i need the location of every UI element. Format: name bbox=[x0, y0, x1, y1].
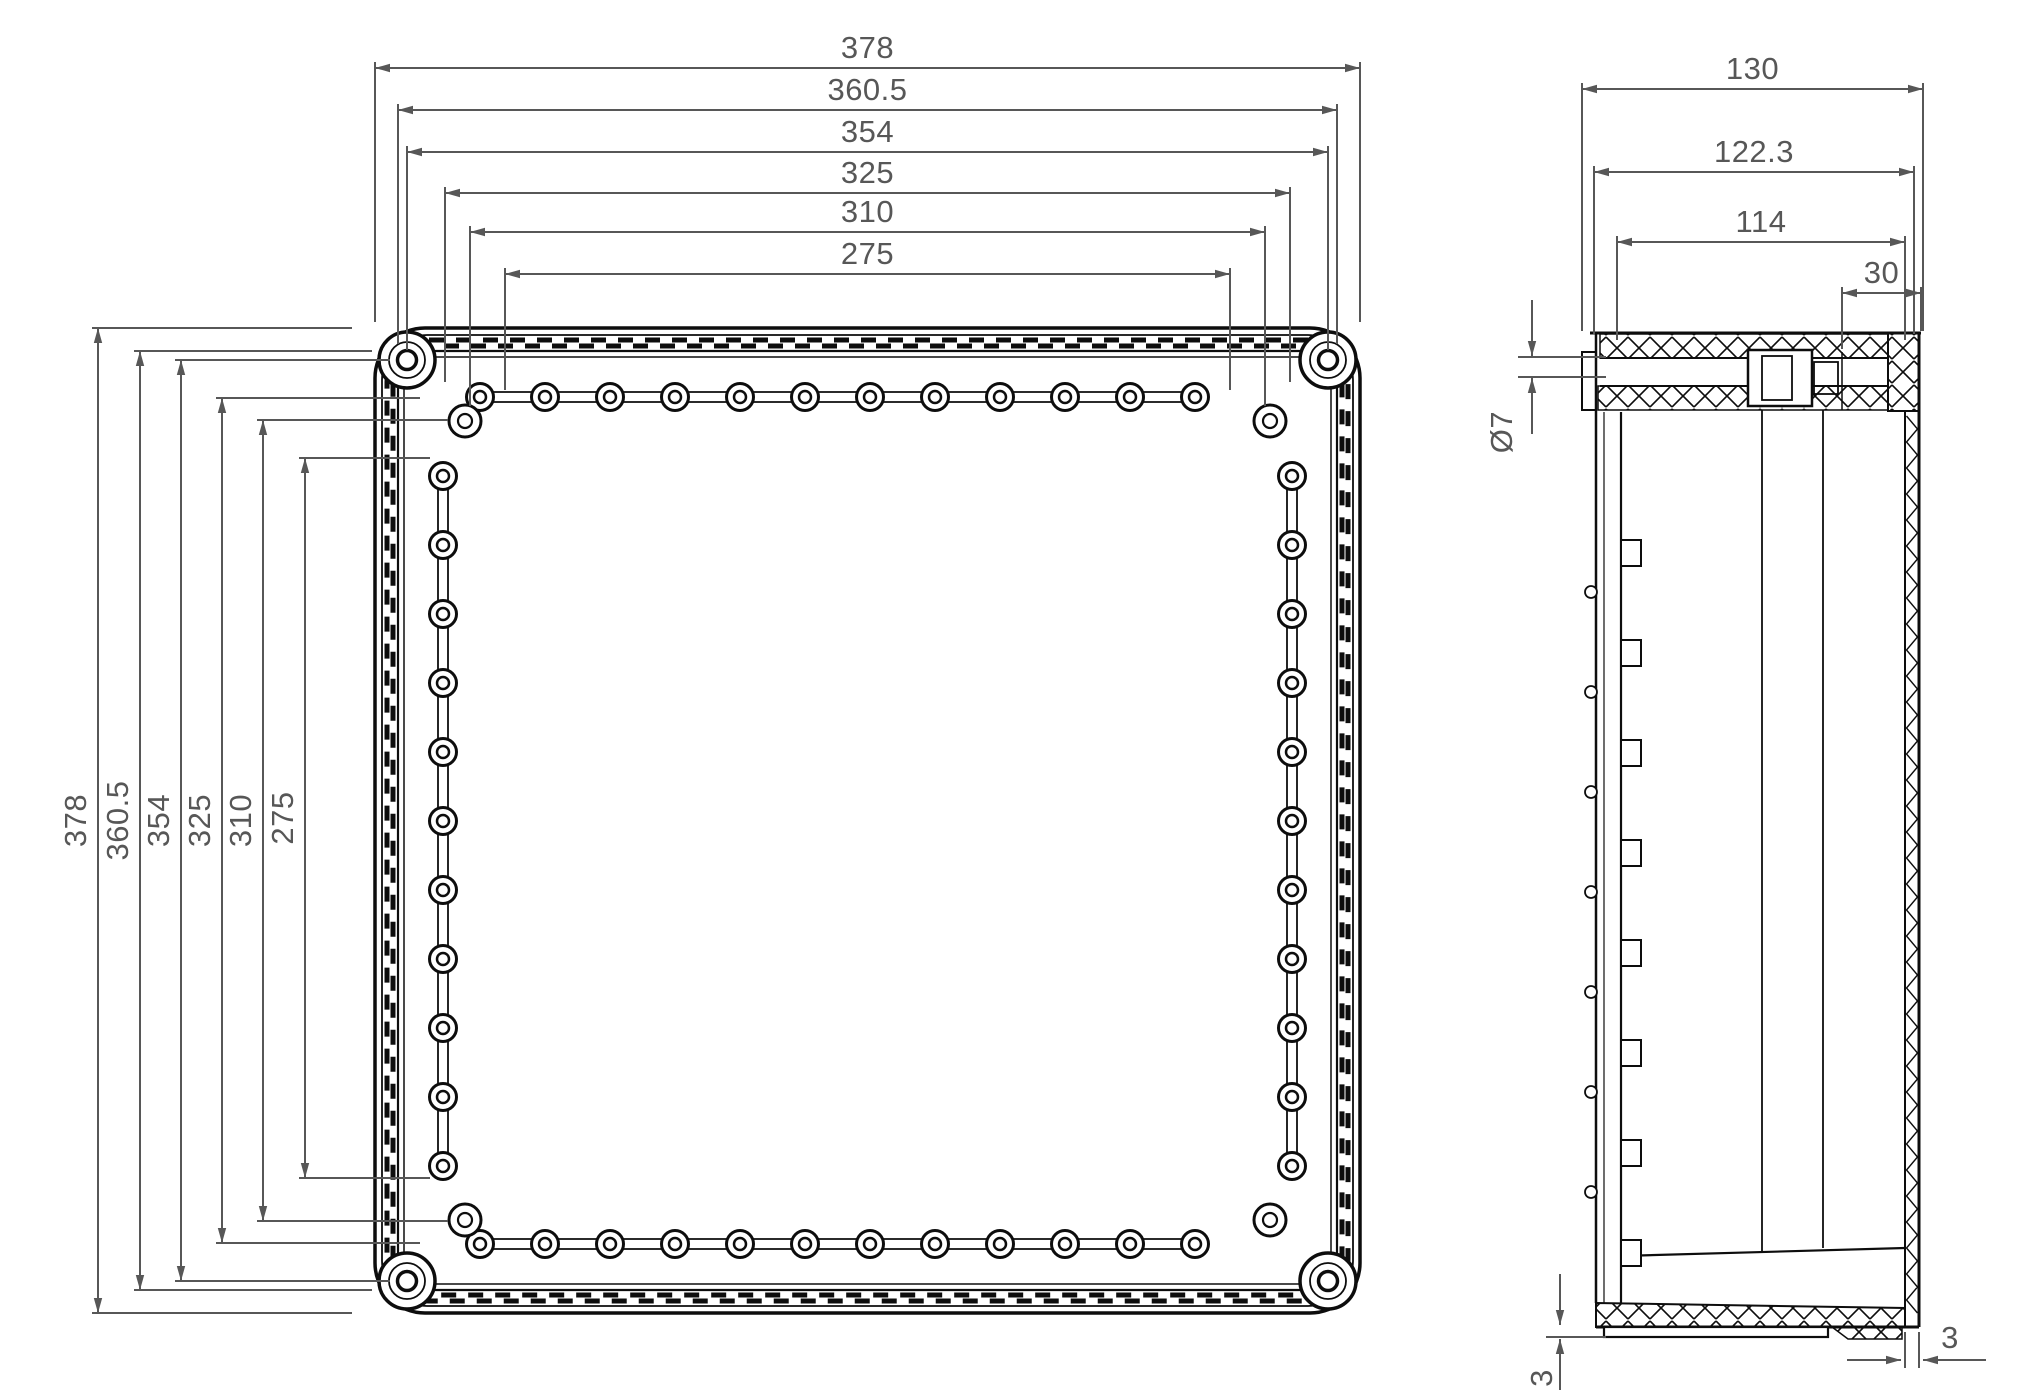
vent-hole bbox=[430, 808, 457, 835]
vent-hole bbox=[430, 946, 457, 973]
flange-tooth bbox=[1621, 1040, 1641, 1066]
vent-hole bbox=[430, 739, 457, 766]
enclosure-wall-line bbox=[382, 335, 1353, 1306]
flange-tooth bbox=[1621, 540, 1641, 566]
cover-screw-section bbox=[1748, 350, 1812, 406]
bottom-foot bbox=[1604, 1327, 1828, 1337]
vent-hole bbox=[1279, 532, 1306, 559]
vent-hole bbox=[792, 1231, 819, 1258]
bottom-wedge-hatch bbox=[1832, 1327, 1902, 1339]
hinge-bump bbox=[1585, 986, 1597, 998]
hinge-bump bbox=[1585, 586, 1597, 598]
enclosure-outer-contour bbox=[375, 328, 1360, 1313]
vent-hole bbox=[987, 384, 1014, 411]
flange-teeth bbox=[1585, 540, 1641, 1266]
dimension-label: 275 bbox=[841, 236, 894, 271]
flange-tooth bbox=[1621, 1140, 1641, 1166]
vent-hole bbox=[430, 463, 457, 490]
dimensions: Ø7 3 3 378360.5354325310275130122.311430… bbox=[58, 30, 1986, 1390]
vent-hole bbox=[1182, 1231, 1209, 1258]
dimension-label: 310 bbox=[223, 794, 258, 847]
vent-hole bbox=[597, 384, 624, 411]
vent-hole bbox=[597, 1231, 624, 1258]
vent-hole bbox=[1279, 739, 1306, 766]
inset-hole bbox=[449, 1204, 481, 1236]
dimension-label: 378 bbox=[841, 30, 894, 65]
dia-label: Ø7 bbox=[1484, 411, 1519, 453]
dimension-label: 360.5 bbox=[100, 780, 135, 860]
vent-hole bbox=[922, 384, 949, 411]
flange-tooth bbox=[1621, 640, 1641, 666]
vent-hole bbox=[1117, 1231, 1144, 1258]
lid-inner-contour bbox=[398, 351, 1337, 1290]
drawing-page: Ø7 3 3 378360.5354325310275130122.311430… bbox=[0, 0, 2040, 1400]
chain-dimensions: 378360.5354325310275130122.311430378360.… bbox=[58, 30, 1923, 1313]
top-wall-hatch-upper bbox=[1600, 334, 1888, 358]
vent-hole bbox=[1279, 946, 1306, 973]
dimension-label: 275 bbox=[265, 791, 300, 844]
front-view bbox=[375, 328, 1360, 1313]
dimension-label: 114 bbox=[1736, 204, 1787, 239]
vent-hole bbox=[430, 670, 457, 697]
vent-hole bbox=[1279, 1084, 1306, 1111]
dimension-label: 130 bbox=[1726, 51, 1779, 86]
corner-screw-bosses bbox=[379, 332, 1356, 1309]
vent-hole bbox=[430, 601, 457, 628]
dimension-label: 122.3 bbox=[1714, 134, 1794, 169]
vent-hole bbox=[662, 1231, 689, 1258]
mounting-holes bbox=[430, 384, 1306, 1258]
corner-boss bbox=[1300, 1253, 1356, 1309]
vent-hole bbox=[1279, 463, 1306, 490]
hidden-edge-dashes-inner bbox=[393, 346, 1342, 1295]
hinge-bump bbox=[1585, 1186, 1597, 1198]
dimension-label: 354 bbox=[141, 794, 176, 847]
wall-rib-zigzag bbox=[1907, 416, 1918, 1313]
flange-tooth bbox=[1621, 840, 1641, 866]
vent-hole bbox=[857, 1231, 884, 1258]
vent-hole bbox=[987, 1231, 1014, 1258]
flange-lip bbox=[1582, 352, 1596, 410]
inset-hole bbox=[1254, 1204, 1286, 1236]
vent-hole bbox=[430, 1015, 457, 1042]
side-view-section bbox=[1582, 333, 1921, 1339]
hinge-bump bbox=[1585, 1086, 1597, 1098]
bottom-wall-hatch bbox=[1596, 1303, 1905, 1327]
hinge-bump bbox=[1585, 786, 1597, 798]
vent-hole bbox=[727, 1231, 754, 1258]
hinge-bump bbox=[1585, 886, 1597, 898]
vent-hole bbox=[662, 384, 689, 411]
enclosure-technical-drawing: Ø7 3 3 378360.5354325310275130122.311430… bbox=[0, 0, 2040, 1400]
thickness-label-left: 3 bbox=[1524, 1369, 1559, 1387]
hidden-edge-dashes-outer bbox=[387, 340, 1348, 1301]
vent-hole bbox=[430, 532, 457, 559]
vent-hole bbox=[1052, 384, 1079, 411]
vent-hole bbox=[532, 1231, 559, 1258]
top-wall-hatch-lower bbox=[1598, 386, 1888, 410]
rib-zigzag bbox=[1907, 416, 1918, 1313]
dimension-label: 30 bbox=[1864, 255, 1899, 290]
vent-hole bbox=[1182, 384, 1209, 411]
vent-hole bbox=[1117, 384, 1144, 411]
flange-tooth bbox=[1621, 740, 1641, 766]
inner-bottom-line bbox=[1621, 1248, 1905, 1256]
vent-hole bbox=[1279, 670, 1306, 697]
dimension-label: 325 bbox=[182, 794, 217, 847]
vent-hole bbox=[430, 1153, 457, 1180]
vent-hole bbox=[430, 877, 457, 904]
dimension-label: 378 bbox=[58, 794, 93, 847]
thickness-label-right: 3 bbox=[1941, 1320, 1959, 1355]
lid-right-wall-hatch bbox=[1888, 333, 1919, 411]
vent-hole bbox=[1052, 1231, 1079, 1258]
inset-hole bbox=[1254, 405, 1286, 437]
flange-tooth bbox=[1621, 1240, 1641, 1266]
vent-hole bbox=[1279, 1015, 1306, 1042]
dimension-label: 354 bbox=[841, 114, 894, 149]
vent-hole bbox=[532, 384, 559, 411]
vent-hole bbox=[1279, 808, 1306, 835]
hinge-bump bbox=[1585, 686, 1597, 698]
vent-hole bbox=[727, 384, 754, 411]
dimension-label: 325 bbox=[841, 155, 894, 190]
vent-hole bbox=[1279, 877, 1306, 904]
dimension-label: 310 bbox=[841, 194, 894, 229]
flange-tooth bbox=[1621, 940, 1641, 966]
vent-hole bbox=[1279, 1153, 1306, 1180]
vent-hole bbox=[792, 384, 819, 411]
dimension-label: 360.5 bbox=[827, 72, 907, 107]
vent-hole bbox=[430, 1084, 457, 1111]
vent-hole bbox=[857, 384, 884, 411]
vent-hole bbox=[1279, 601, 1306, 628]
inset-hole bbox=[449, 405, 481, 437]
lid-seal-contour bbox=[404, 357, 1331, 1284]
vent-hole bbox=[922, 1231, 949, 1258]
